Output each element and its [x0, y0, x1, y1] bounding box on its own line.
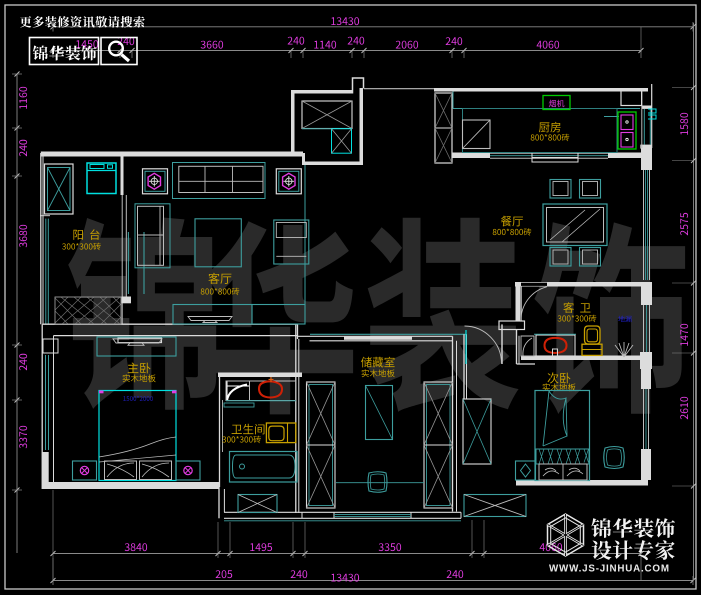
svg-text:WWW.JS-JINHUA.COM: WWW.JS-JINHUA.COM [549, 564, 670, 575]
